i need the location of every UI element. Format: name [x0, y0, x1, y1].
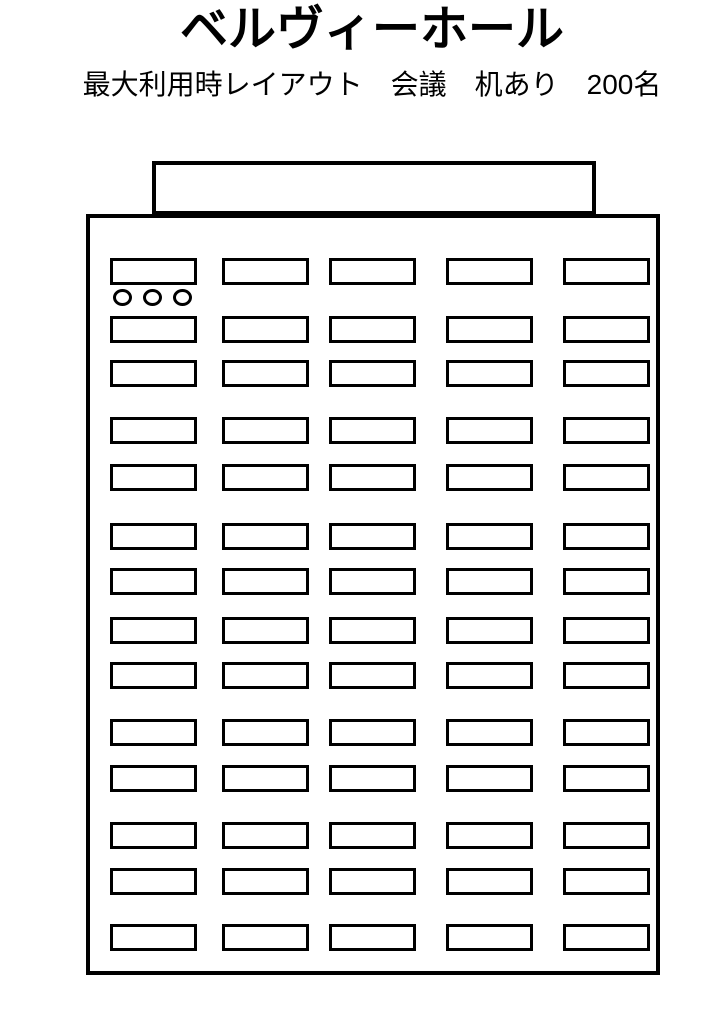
desk — [110, 316, 197, 343]
desk — [110, 662, 197, 689]
desk — [329, 360, 416, 387]
desk — [329, 316, 416, 343]
desk — [110, 719, 197, 746]
desk — [110, 523, 197, 550]
desk — [446, 617, 533, 644]
desk — [110, 617, 197, 644]
desk — [329, 719, 416, 746]
desk — [446, 417, 533, 444]
desk — [110, 924, 197, 951]
desk — [222, 868, 309, 895]
desk — [446, 822, 533, 849]
desk — [222, 662, 309, 689]
head-desk — [110, 258, 197, 285]
desk — [222, 924, 309, 951]
desk — [329, 417, 416, 444]
desk — [446, 258, 533, 285]
desk — [563, 868, 650, 895]
desk — [446, 316, 533, 343]
desk — [222, 316, 309, 343]
stage — [152, 161, 596, 215]
desk — [110, 417, 197, 444]
desk — [563, 765, 650, 792]
desk — [329, 568, 416, 595]
desk — [222, 417, 309, 444]
desk — [110, 765, 197, 792]
desk — [329, 258, 416, 285]
desk — [329, 765, 416, 792]
desk — [563, 258, 650, 285]
desk — [110, 822, 197, 849]
desk — [222, 617, 309, 644]
desk — [446, 662, 533, 689]
desk — [446, 464, 533, 491]
desk — [110, 868, 197, 895]
desk — [563, 662, 650, 689]
desk — [329, 464, 416, 491]
desk — [222, 360, 309, 387]
head-desk-chairs — [113, 289, 192, 306]
desk — [563, 822, 650, 849]
desk — [563, 360, 650, 387]
desk — [329, 822, 416, 849]
desk — [110, 568, 197, 595]
desk — [222, 258, 309, 285]
desk — [329, 523, 416, 550]
desk — [563, 316, 650, 343]
desk — [563, 568, 650, 595]
room-outline — [86, 214, 660, 975]
desk — [563, 719, 650, 746]
desk — [446, 523, 533, 550]
desk — [446, 924, 533, 951]
header: ベルヴィーホール 最大利用時レイアウト 会議 机あり 200名 — [0, 0, 709, 103]
desk — [446, 765, 533, 792]
floor-plan-page: ベルヴィーホール 最大利用時レイアウト 会議 机あり 200名 — [0, 0, 709, 1024]
desk — [563, 464, 650, 491]
chair-icon — [113, 289, 132, 306]
desk — [329, 868, 416, 895]
desk — [563, 523, 650, 550]
desk — [446, 568, 533, 595]
desk — [563, 924, 650, 951]
desk — [446, 360, 533, 387]
desk — [563, 417, 650, 444]
desk — [446, 719, 533, 746]
desk — [222, 822, 309, 849]
chair-icon — [143, 289, 162, 306]
desk — [329, 617, 416, 644]
desk — [329, 662, 416, 689]
desk — [222, 719, 309, 746]
desk — [110, 464, 197, 491]
desk — [110, 360, 197, 387]
layout-subtitle: 最大利用時レイアウト 会議 机あり 200名 — [35, 63, 709, 103]
desk — [222, 523, 309, 550]
desk — [329, 924, 416, 951]
desk — [222, 464, 309, 491]
desk — [222, 568, 309, 595]
chair-icon — [173, 289, 192, 306]
desk — [222, 765, 309, 792]
desk — [563, 617, 650, 644]
hall-title: ベルヴィーホール — [35, 2, 709, 57]
desk — [446, 868, 533, 895]
